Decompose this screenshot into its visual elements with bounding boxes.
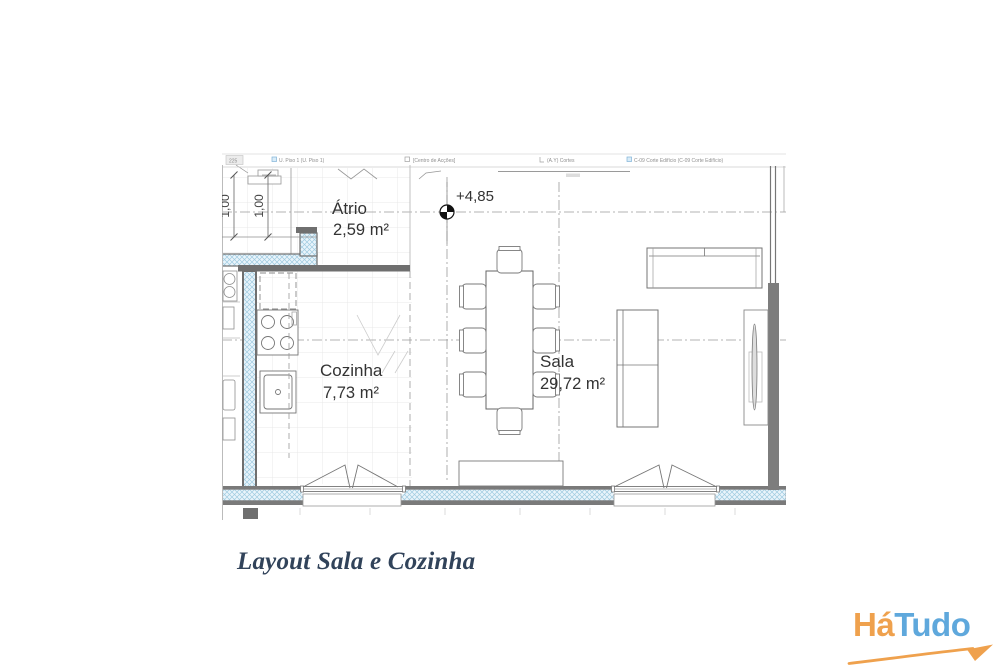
room-name-atrio: Átrio [332, 199, 367, 218]
view-icon [272, 157, 277, 162]
view-label-centro: [Centro de Acções] [413, 158, 456, 164]
logo-word-ha: Há [853, 606, 894, 643]
dimension-value-2: 1,00 [222, 194, 232, 218]
corte-icon [627, 157, 632, 162]
image-caption: Layout Sala e Cozinha [237, 548, 567, 576]
level-value: +4,85 [456, 188, 494, 205]
bench [459, 461, 563, 486]
view-label-cortes: (A.Y) Cortes [547, 158, 575, 164]
room-area-cozinha: 7,73 m² [323, 384, 379, 402]
room-name-cozinha: Cozinha [320, 361, 383, 380]
section-tag [566, 174, 580, 178]
floorplan-svg: 225 U. Piso 1 (U. Piso 1) [Centro de Acç… [222, 152, 786, 525]
logo-word-tudo: Tudo [894, 606, 970, 643]
room-name-sala: Sala [540, 352, 575, 371]
room-area-sala: 29,72 m² [540, 375, 606, 393]
stove [257, 310, 298, 355]
sofa [647, 248, 762, 288]
dining-table [486, 271, 533, 409]
swoosh-arrow-icon [847, 644, 995, 666]
sink [260, 371, 296, 413]
page: 225 U. Piso 1 (U. Piso 1) [Centro de Acç… [0, 0, 1001, 667]
ref-box-label: 225 [229, 159, 238, 165]
sideboard [617, 310, 658, 427]
floorplan-image: 225 U. Piso 1 (U. Piso 1) [Centro de Acç… [222, 152, 786, 525]
dimension-value-1: 1,00 [252, 194, 266, 218]
hatudo-logo: HáTudo [853, 606, 993, 662]
logo-wordmark: HáTudo [853, 606, 993, 644]
view-label-piso: U. Piso 1 (U. Piso 1) [279, 158, 325, 164]
tv-unit [744, 310, 768, 425]
view-label-corte-edificio: C-09 Corte Edifício (C-09 Corte Edifício… [634, 158, 724, 164]
room-area-atrio: 2,59 m² [333, 221, 389, 239]
